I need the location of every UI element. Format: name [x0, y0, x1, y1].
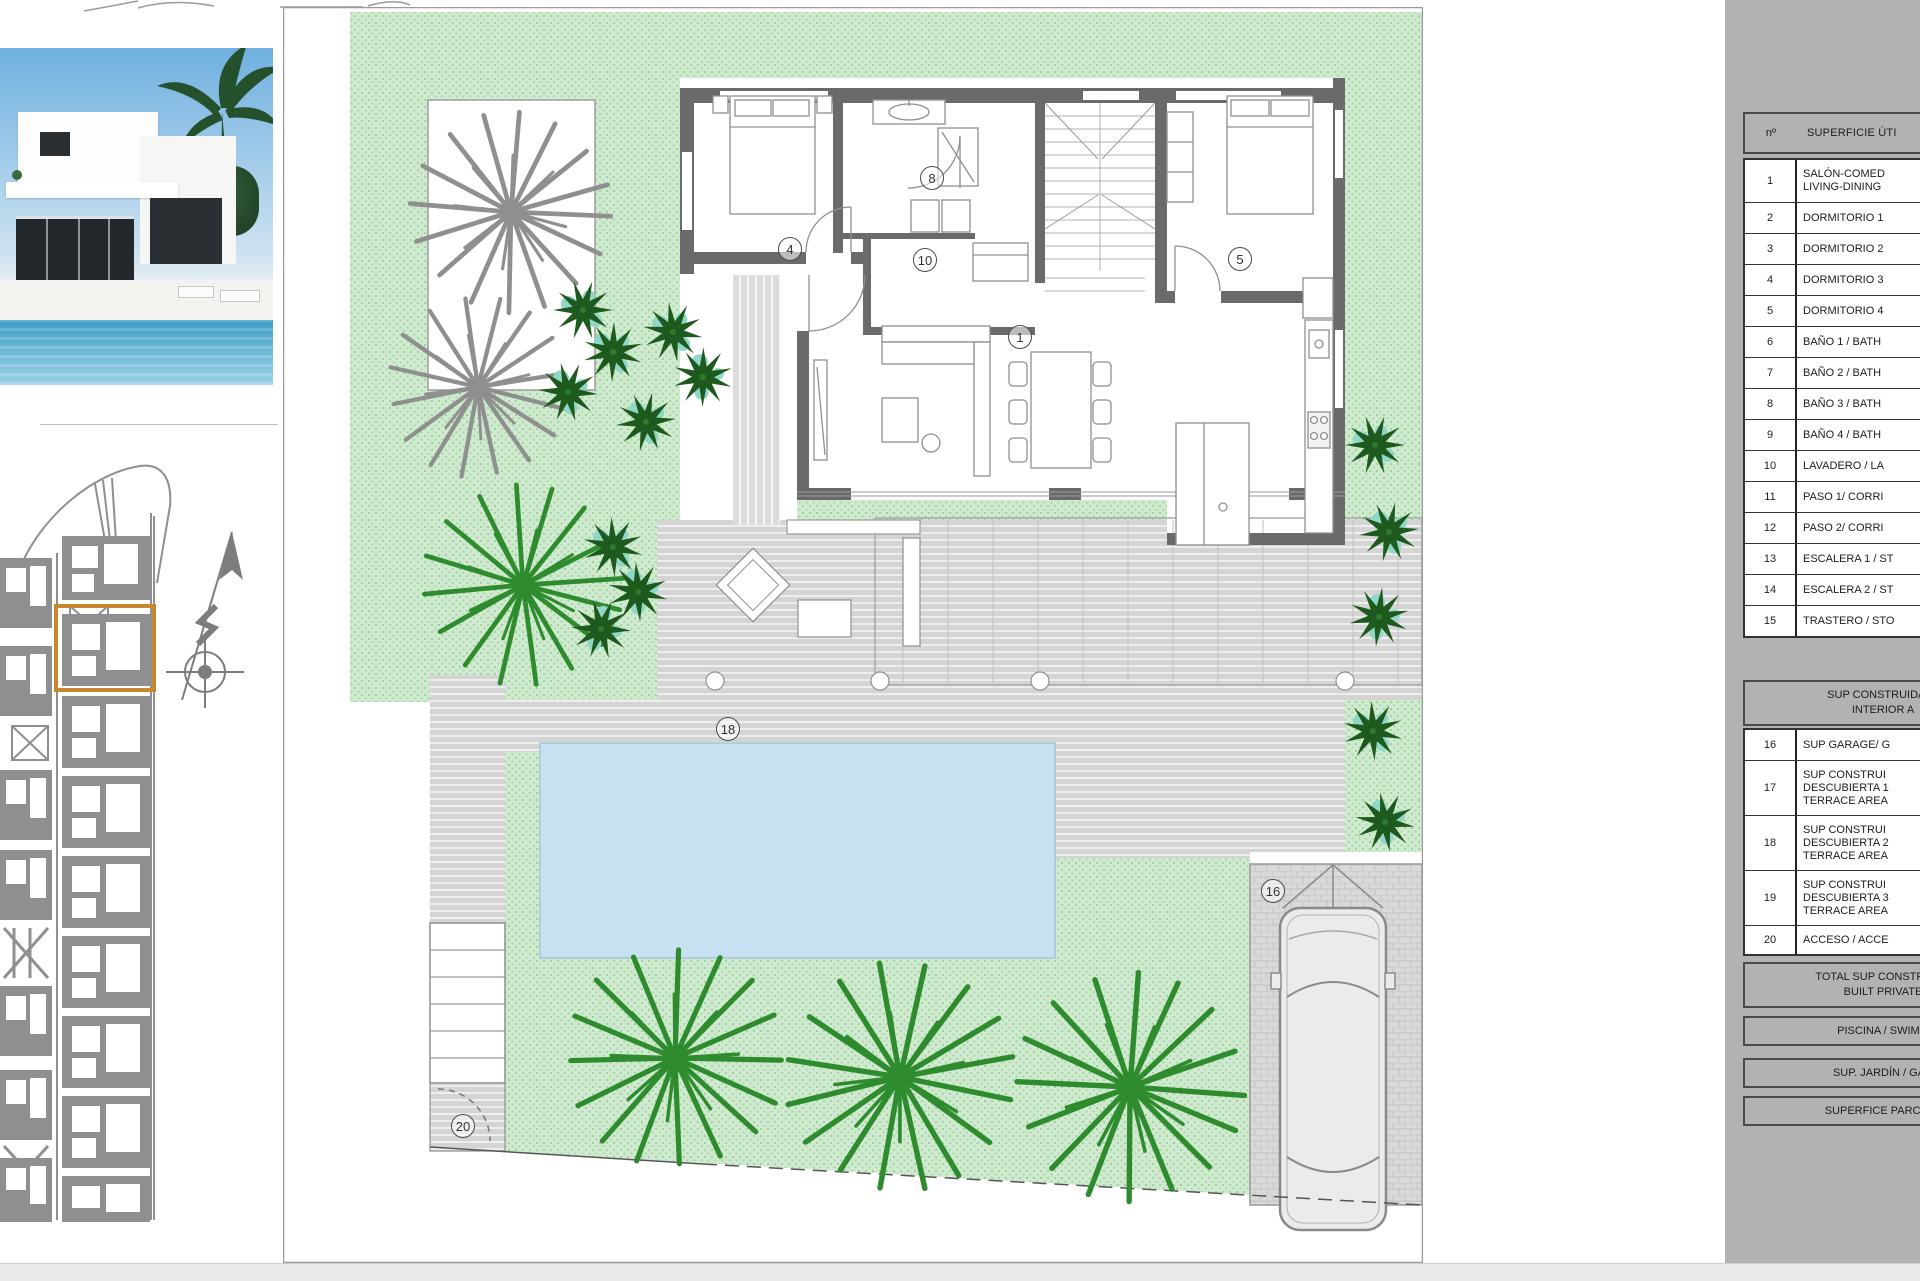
table-row: 1SALÓN-COMEDLIVING-DINING [1745, 160, 1920, 202]
built-area-table: 16SUP GARAGE/ G 17SUP CONSTRUIDESCUBIERT… [1743, 728, 1920, 956]
table-row: 17SUP CONSTRUIDESCUBIERTA 1TERRACE AREA [1745, 760, 1920, 815]
table-row: 13ESCALERA 1 / ST [1745, 543, 1920, 574]
side-walkway [733, 275, 780, 525]
room-marker-20: 20 [451, 1114, 475, 1138]
room-marker-5: 5 [1228, 247, 1252, 271]
swimming-pool [540, 743, 1055, 958]
room-marker-1: 1 [1008, 325, 1032, 349]
room-marker-10: 10 [913, 248, 937, 272]
room-marker-16: 16 [1261, 879, 1285, 903]
photo-pool [0, 320, 273, 385]
areas-panel: nº SUPERFICIE ÚTI 1SALÓN-COMEDLIVING-DIN… [1725, 0, 1920, 1263]
table-row: 6BAÑO 1 / BATH [1745, 326, 1920, 357]
table-row: 12PASO 2/ CORRI [1745, 512, 1920, 543]
table-header: nº SUPERFICIE ÚTI [1743, 112, 1920, 154]
plot-area-row: SUPERFICE PARCELA [1743, 1096, 1920, 1126]
useful-area-table: 1SALÓN-COMEDLIVING-DINING 2DORMITORIO 1 … [1743, 158, 1920, 638]
page-bottom-strip [0, 1263, 1920, 1281]
table-row: 16SUP GARAGE/ G [1745, 730, 1920, 760]
divider-line [40, 424, 278, 425]
pool-area-row: PISCINA / SWIMM [1743, 1016, 1920, 1046]
ground-floor-glazing [16, 216, 134, 283]
main-floor-plan [283, 7, 1423, 1263]
room-marker-18: 18 [716, 717, 740, 741]
outdoor-table [798, 600, 851, 637]
table-row: 15TRASTERO / STO [1745, 605, 1920, 636]
room-marker-4: 4 [778, 237, 802, 261]
unit-footprints [62, 536, 150, 1222]
villa-photo [0, 48, 273, 385]
col-number-header: nº [1745, 127, 1797, 139]
site-plan [0, 458, 250, 1228]
table-row: 18SUP CONSTRUIDESCUBIERTA 2TERRACE AREA [1745, 815, 1920, 870]
table-row: 9BAÑO 4 / BATH [1745, 419, 1920, 450]
pool-terrace [0, 280, 273, 324]
balcony-slab [6, 182, 178, 198]
table-row: 5DORMITORIO 4 [1745, 295, 1920, 326]
right-window [150, 198, 222, 264]
driveway [1250, 852, 1422, 1230]
table-row: 7BAÑO 2 / BATH [1745, 357, 1920, 388]
table-row: 14ESCALERA 2 / ST [1745, 574, 1920, 605]
garden-area-row: SUP. JARDÍN / GAR [1743, 1058, 1920, 1088]
sun-lounger [178, 286, 214, 298]
table-row: 4DORMITORIO 3 [1745, 264, 1920, 295]
deck-left-strip [430, 675, 505, 935]
total-built-row: TOTAL SUP CONSTRUIDABUILT PRIVATE [1743, 962, 1920, 1008]
table-row: 19SUP CONSTRUIDESCUBIERTA 3TERRACE AREA [1745, 870, 1920, 925]
table-row: 3DORMITORIO 2 [1745, 233, 1920, 264]
built-area-section-header: SUP CONSTRUIDA ININTERIOR A [1743, 680, 1920, 726]
sun-lounger [220, 290, 260, 302]
unit-footprints-left [0, 558, 52, 1222]
deck-right [1055, 752, 1345, 858]
table-row: 8BAÑO 3 / BATH [1745, 388, 1920, 419]
table-row: 2DORMITORIO 1 [1745, 202, 1920, 233]
col-label-header: SUPERFICIE ÚTI [1807, 127, 1897, 139]
table-row: 10LAVADERO / LA [1745, 450, 1920, 481]
balcony-hedge [12, 170, 22, 180]
table-row: 20ACCESO / ACCE [1745, 925, 1920, 954]
upper-window [40, 132, 70, 156]
car-top-view [1271, 908, 1395, 1230]
north-arrow-icon [166, 532, 244, 708]
table-row: 11PASO 1/ CORRI [1745, 481, 1920, 512]
room-marker-8: 8 [920, 166, 944, 190]
floorplan-sheet: { "panel": { "header": { "col_num": "nº"… [0, 0, 1920, 1280]
